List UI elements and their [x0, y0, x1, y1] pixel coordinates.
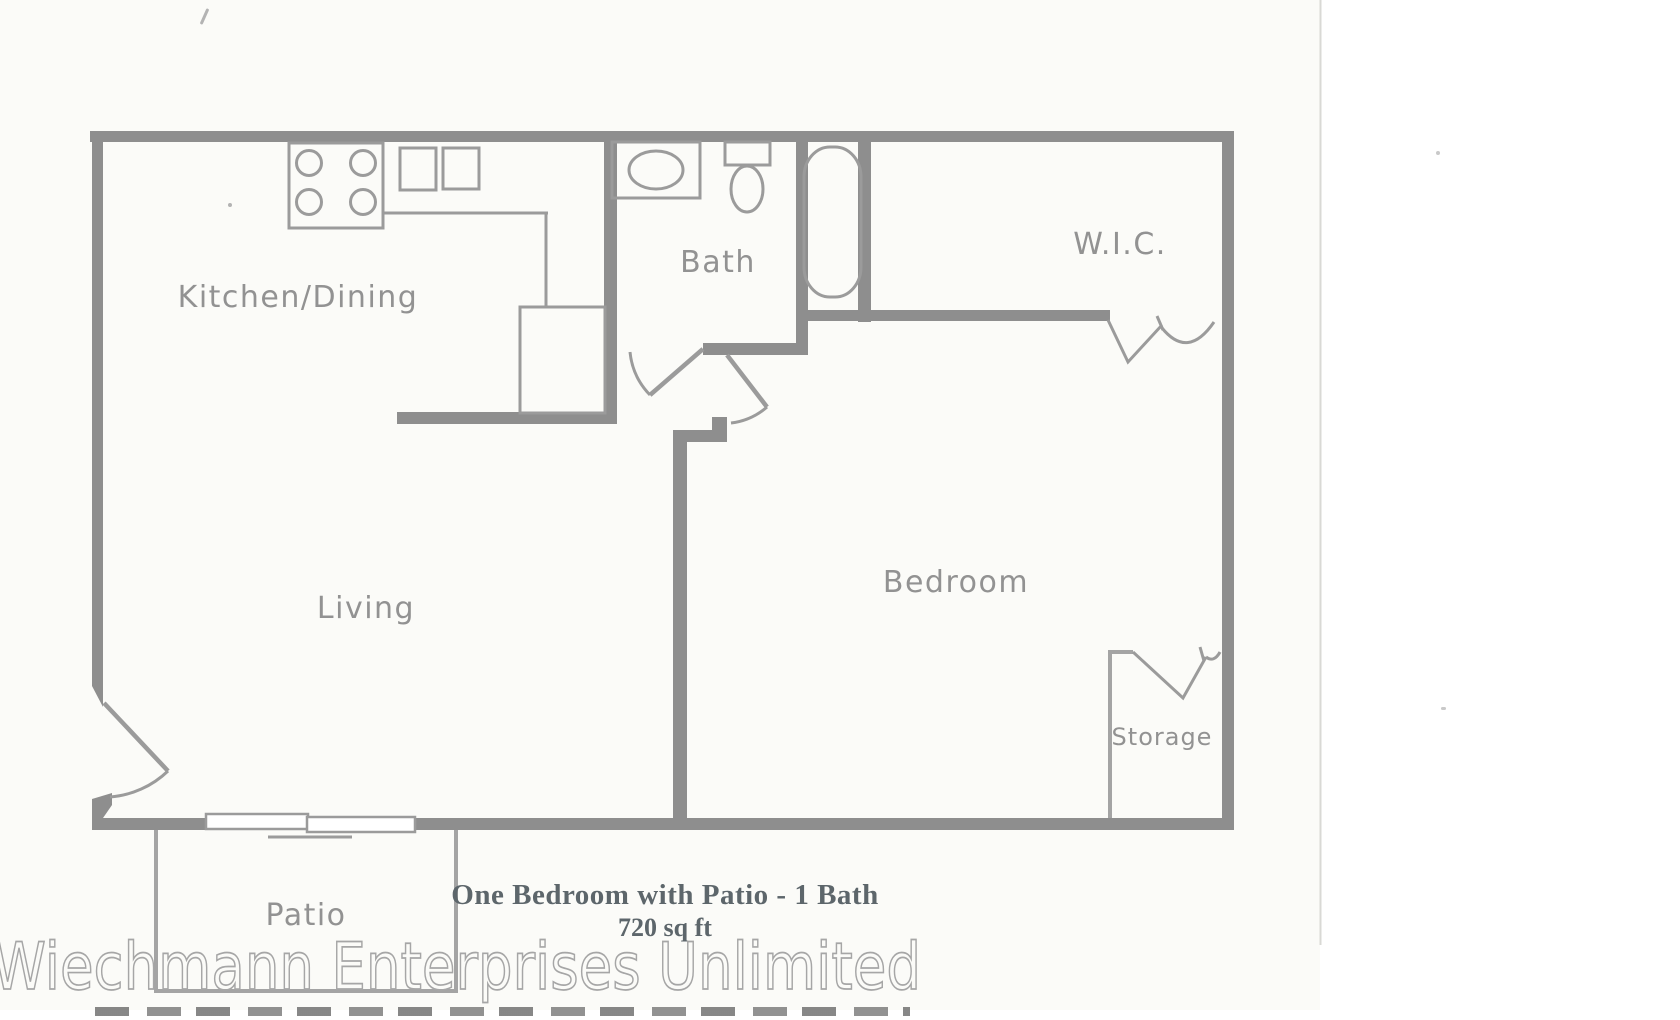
watermark-text: Wiechmann Enterprises Unlimited — [0, 930, 921, 1005]
bath-door-swing — [630, 349, 703, 395]
room-label-bedroom: Bedroom — [883, 565, 1029, 600]
storage-bifold-door — [1133, 647, 1220, 698]
stove-icon — [289, 143, 383, 228]
room-label-wic: W.I.C. — [1073, 227, 1167, 262]
exterior-walls — [90, 131, 1234, 830]
room-label-bath: Bath — [680, 245, 756, 280]
scan-speck — [228, 203, 232, 207]
floor-plan-drawing: Kitchen/Dining Bath W.I.C. Living Bedroo… — [0, 0, 1680, 1020]
room-label-kitchen-dining: Kitchen/Dining — [178, 280, 419, 315]
scan-speck — [1436, 151, 1440, 155]
interior-walls — [397, 142, 1110, 818]
scan-smudge-line — [95, 1007, 910, 1016]
bathroom-sink-icon — [612, 142, 700, 198]
kitchen-sink-icon — [400, 148, 479, 190]
bathtub-icon — [804, 147, 861, 297]
scan-speck — [1441, 707, 1446, 710]
sliding-patio-door — [206, 814, 415, 837]
room-label-patio: Patio — [265, 898, 346, 933]
floor-plan-scan: Kitchen/Dining Bath W.I.C. Living Bedroo… — [0, 0, 1680, 1020]
wic-bifold-door — [1108, 316, 1214, 362]
entry-door-swing — [104, 703, 168, 797]
toilet-icon — [725, 142, 770, 212]
plan-title: One Bedroom with Patio - 1 Bath — [380, 879, 950, 912]
bedroom-door-swing — [727, 355, 767, 423]
refrigerator-icon — [520, 307, 605, 413]
room-label-storage: Storage — [1112, 723, 1213, 751]
room-label-living: Living — [317, 591, 415, 626]
